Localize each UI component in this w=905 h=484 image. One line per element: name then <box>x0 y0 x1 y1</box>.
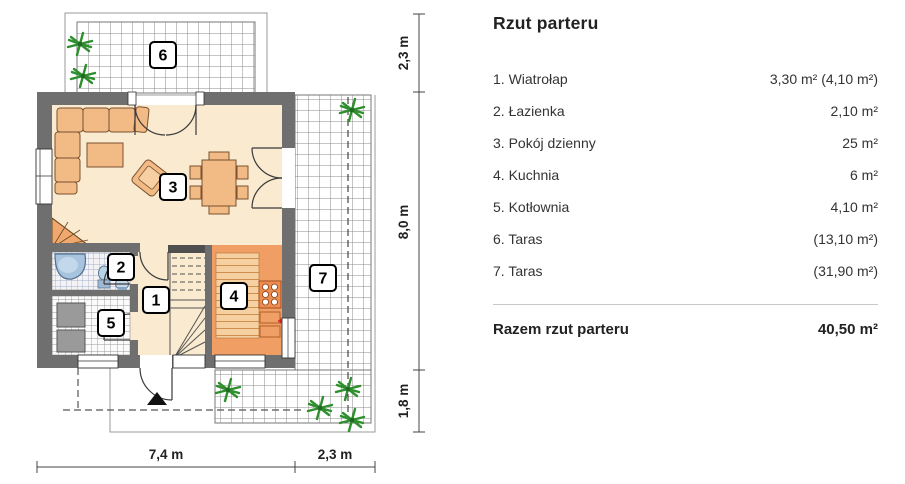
room-name: 6. Taras <box>493 231 543 247</box>
list-item: 4. Kuchnia 6 m² <box>493 159 878 191</box>
room-area: (13,10 m²) <box>813 231 878 247</box>
total-area: 40,50 m² <box>818 321 878 338</box>
list-item: 1. Wiatrołap 3,30 m² (4,10 m²) <box>493 63 878 95</box>
list-item: 5. Kotłownia 4,10 m² <box>493 191 878 223</box>
coffee-table <box>87 143 123 167</box>
room-label-1: 1 <box>143 287 169 313</box>
room-area: (31,90 m²) <box>813 263 878 279</box>
room-name: 1. Wiatrołap <box>493 71 568 87</box>
room-number-5: 5 <box>107 316 116 333</box>
wall-kitchen-stairs <box>205 245 212 355</box>
room-area: 3,30 m² (4,10 m²) <box>770 71 878 87</box>
front-door-opening <box>140 355 172 368</box>
room-name: 4. Kuchnia <box>493 167 559 183</box>
total-row: Razem rzut parteru 40,50 m² <box>493 313 878 345</box>
door-jamb-top-right <box>196 92 204 105</box>
boiler-unit-1 <box>57 303 85 327</box>
window-left <box>36 149 52 204</box>
room-list: 1. Wiatrołap 3,30 m² (4,10 m²) 2. Łazien… <box>493 63 878 287</box>
room-name: 2. Łazienka <box>493 103 565 119</box>
wall-bath-boiler <box>52 290 130 296</box>
room-label-2: 2 <box>108 254 134 280</box>
room-label-4: 4 <box>221 283 247 309</box>
list-item: 7. Taras (31,90 m²) <box>493 255 878 287</box>
page-title: Rzut parteru <box>493 13 598 34</box>
floorplan-page: 1 2 3 4 5 6 7 <box>0 0 905 484</box>
dim-bottom-right: 2,3 m <box>318 447 353 462</box>
total-label: Razem rzut parteru <box>493 321 629 338</box>
wall-top-right <box>196 92 295 105</box>
room-number-4: 4 <box>230 289 239 306</box>
list-item: 2. Łazienka 2,10 m² <box>493 95 878 127</box>
room-area: 6 m² <box>850 167 878 183</box>
door-opening-right <box>282 148 295 208</box>
floorplan-svg: 1 2 3 4 5 6 7 <box>0 0 460 484</box>
dim-right-bottom: 1,8 m <box>396 384 411 419</box>
room-label-5: 5 <box>98 310 124 336</box>
boiler-unit-2 <box>57 330 85 352</box>
room-label-3: 3 <box>160 174 186 200</box>
wall-bath-3 <box>130 340 138 355</box>
divider <box>493 304 878 305</box>
room-number-3: 3 <box>169 180 178 197</box>
window-bottom-stairs <box>173 355 205 368</box>
room-area: 2,10 m² <box>831 103 878 119</box>
window-bottom-left <box>78 355 118 368</box>
legend-panel: Rzut parteru 1. Wiatrołap 3,30 m² (4,10 … <box>493 0 878 484</box>
list-item: 6. Taras (13,10 m²) <box>493 223 878 255</box>
window-right <box>282 318 295 358</box>
list-item: 3. Pokój dzienny 25 m² <box>493 127 878 159</box>
door-jamb-top-left <box>128 92 136 105</box>
room-area: 4,10 m² <box>831 199 878 215</box>
dim-right-top: 2,3 m <box>396 36 411 71</box>
room-number-2: 2 <box>117 260 126 277</box>
room-number-7: 7 <box>319 271 328 288</box>
room-name: 5. Kotłownia <box>493 199 569 215</box>
floorplan-drawing: 1 2 3 4 5 6 7 <box>0 0 460 484</box>
window-bottom-kitchen <box>215 355 265 368</box>
room-label-7: 7 <box>310 265 336 291</box>
room-label-6: 6 <box>150 42 176 68</box>
room-name: 7. Taras <box>493 263 543 279</box>
room-number-6: 6 <box>159 48 168 65</box>
wall-bath-2 <box>130 284 138 312</box>
dim-bottom-left: 7,4 m <box>149 447 184 462</box>
room-name: 3. Pokój dzienny <box>493 135 596 151</box>
shower-highlight <box>58 257 78 273</box>
room-area: 25 m² <box>842 135 878 151</box>
wall-living-hall <box>52 243 140 252</box>
wall-left <box>37 92 52 368</box>
dim-right-mid: 8,0 m <box>396 205 411 240</box>
room-number-1: 1 <box>152 293 161 310</box>
stove <box>259 281 281 308</box>
